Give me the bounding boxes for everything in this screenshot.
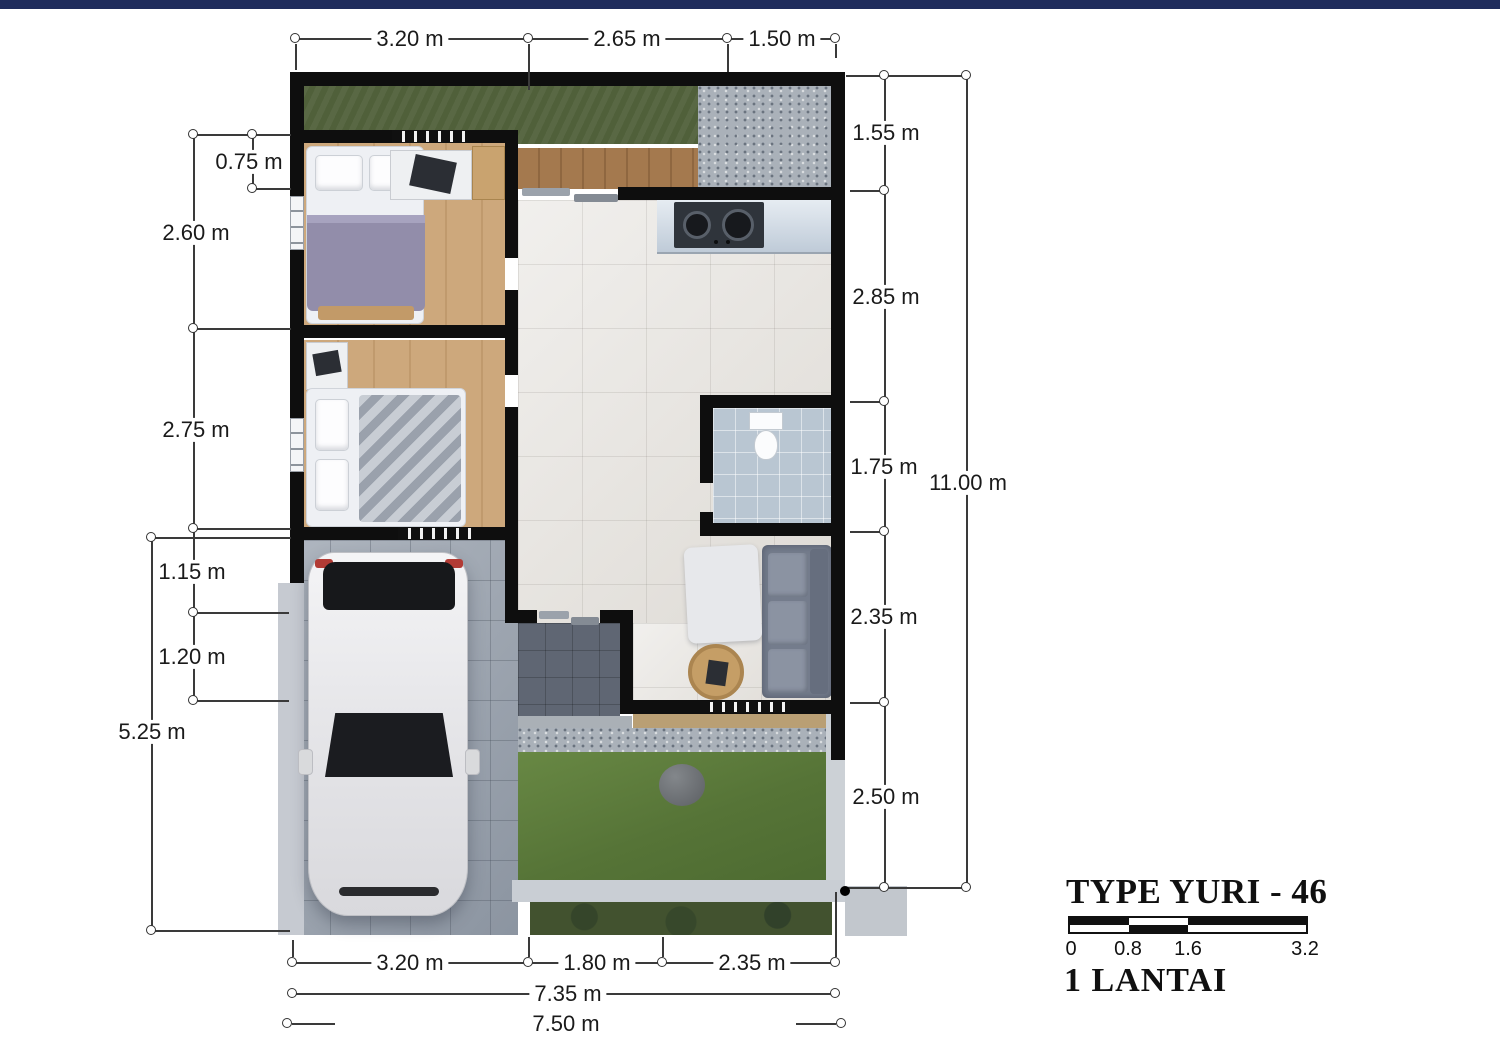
top-accent-bar bbox=[0, 0, 1500, 9]
sofa bbox=[762, 545, 832, 698]
wall-kitchen-top bbox=[618, 187, 831, 200]
sofa-cushion bbox=[768, 553, 808, 597]
dim-label: 2.75 m bbox=[157, 418, 234, 442]
dim-line bbox=[292, 1023, 335, 1025]
dim-circle bbox=[146, 925, 156, 935]
wall-hall-b bbox=[505, 290, 518, 375]
entry-sliding-door bbox=[539, 611, 569, 619]
dim-line bbox=[835, 892, 837, 957]
dim-label: 7.35 m bbox=[529, 982, 606, 1006]
dim-label: 2.85 m bbox=[847, 285, 924, 309]
dim-line bbox=[662, 937, 664, 957]
dim-label: 2.60 m bbox=[157, 221, 234, 245]
dim-line bbox=[528, 937, 530, 957]
garden-stone bbox=[659, 764, 705, 806]
table-tray bbox=[705, 660, 728, 687]
dim-circle bbox=[247, 183, 257, 193]
corner-dot bbox=[840, 886, 850, 896]
scale-tick: 0.8 bbox=[1114, 938, 1142, 961]
dim-label: 7.50 m bbox=[527, 1012, 604, 1036]
car bbox=[308, 552, 468, 916]
wall-left bbox=[290, 72, 304, 583]
wall-bedrooms-divider bbox=[304, 325, 518, 338]
dim-circle bbox=[188, 129, 198, 139]
sofa-backrest bbox=[810, 549, 828, 694]
dim-circle bbox=[722, 33, 732, 43]
wall-hall-a bbox=[505, 130, 518, 258]
coffee-table bbox=[688, 644, 744, 700]
wood-deck bbox=[518, 148, 698, 189]
dim-label: 0.75 m bbox=[210, 150, 287, 174]
bed-1-bench bbox=[318, 306, 414, 320]
dim-circle bbox=[879, 526, 889, 536]
entry-sliding-door bbox=[571, 617, 599, 625]
scale-bar-bottom-row bbox=[1070, 925, 1306, 932]
dim-line bbox=[292, 940, 294, 957]
dim-circle bbox=[879, 882, 889, 892]
dim-line bbox=[151, 930, 290, 932]
front-hedge bbox=[530, 902, 832, 935]
plan-title: TYPE YURI - 46 bbox=[1066, 872, 1327, 912]
car-grille bbox=[339, 887, 439, 896]
kitchen-sliding-door bbox=[522, 188, 570, 196]
bed-1-blanket bbox=[307, 215, 425, 311]
dim-label: 2.50 m bbox=[847, 785, 924, 809]
dim-line bbox=[193, 134, 291, 136]
toilet-tank bbox=[749, 412, 783, 430]
wall-bath-top bbox=[700, 395, 831, 408]
terrace-floor bbox=[518, 623, 620, 716]
side-table-frame bbox=[312, 350, 341, 376]
scale-tick: 3.2 bbox=[1291, 938, 1319, 961]
dim-label: 2.35 m bbox=[845, 605, 922, 629]
dim-label: 2.65 m bbox=[588, 27, 665, 51]
window-bedroom1-side bbox=[290, 196, 304, 250]
scale-bar-top-row bbox=[1070, 918, 1306, 925]
scale-tick: 0 bbox=[1065, 938, 1076, 961]
living-rug bbox=[684, 544, 763, 644]
dim-line bbox=[884, 75, 886, 887]
dim-circle bbox=[188, 323, 198, 333]
dim-label: 1.50 m bbox=[743, 27, 820, 51]
dim-label: 1.55 m bbox=[847, 121, 924, 145]
sofa-cushion bbox=[768, 601, 808, 645]
bed-1-pillow bbox=[315, 155, 363, 191]
dim-circle bbox=[287, 988, 297, 998]
dim-label: 1.80 m bbox=[558, 951, 635, 975]
dim-circle bbox=[961, 882, 971, 892]
dim-circle bbox=[287, 957, 297, 967]
car-mirror bbox=[465, 749, 480, 775]
wall-bath-bottom bbox=[700, 523, 831, 536]
dim-line bbox=[846, 887, 966, 889]
wardrobe bbox=[472, 146, 505, 200]
dim-line bbox=[846, 75, 966, 77]
gravel-corner bbox=[698, 86, 832, 187]
scale-bar bbox=[1068, 916, 1308, 934]
window-bedroom1 bbox=[392, 130, 468, 143]
dim-circle bbox=[188, 523, 198, 533]
window-bedroom2 bbox=[398, 527, 472, 540]
dim-line bbox=[295, 44, 297, 70]
scale-tick: 1.6 bbox=[1174, 938, 1202, 961]
sofa-cushion bbox=[768, 649, 808, 693]
dim-line bbox=[835, 44, 837, 58]
stove bbox=[674, 202, 764, 248]
dim-line bbox=[796, 1023, 836, 1025]
dim-line bbox=[151, 537, 291, 539]
dim-circle bbox=[146, 532, 156, 542]
dim-label: 3.20 m bbox=[371, 27, 448, 51]
dim-circle bbox=[830, 957, 840, 967]
dim-label: 2.35 m bbox=[713, 951, 790, 975]
floor-plan-canvas: 3.20 m 2.65 m 1.50 m 0.75 m 2.60 m 2.75 … bbox=[0, 0, 1500, 1061]
dim-circle bbox=[523, 957, 533, 967]
kitchen-sliding-door bbox=[574, 194, 618, 202]
dim-circle bbox=[879, 185, 889, 195]
wall-top bbox=[290, 72, 845, 86]
car-windshield bbox=[325, 713, 453, 777]
dim-circle bbox=[830, 33, 840, 43]
wall-right bbox=[831, 72, 845, 760]
dim-circle bbox=[879, 396, 889, 406]
dim-circle bbox=[879, 70, 889, 80]
dim-circle bbox=[282, 1018, 292, 1028]
dim-circle bbox=[247, 129, 257, 139]
dim-line bbox=[193, 700, 289, 702]
wall-entry-left bbox=[505, 610, 537, 623]
dim-line bbox=[193, 528, 291, 530]
dim-line bbox=[528, 44, 530, 90]
dim-circle bbox=[188, 695, 198, 705]
dim-label: 1.20 m bbox=[153, 645, 230, 669]
window-bedroom2-side bbox=[290, 418, 304, 472]
lawn-concrete-edge bbox=[512, 880, 845, 902]
car-mirror bbox=[298, 749, 313, 775]
dim-line bbox=[193, 328, 291, 330]
dim-line bbox=[252, 188, 291, 190]
dim-circle bbox=[836, 1018, 846, 1028]
porch-edge bbox=[633, 714, 832, 728]
wall-hall-c bbox=[505, 407, 518, 623]
dim-line bbox=[727, 44, 729, 72]
dim-label: 1.15 m bbox=[153, 560, 230, 584]
dim-label: 3.20 m bbox=[371, 951, 448, 975]
dim-label: 11.00 m bbox=[924, 471, 1012, 495]
wall-terrace-side bbox=[620, 610, 633, 714]
dim-circle bbox=[657, 957, 667, 967]
terrace-step bbox=[518, 716, 632, 728]
bed-2-pillow bbox=[315, 459, 349, 511]
dim-circle bbox=[830, 988, 840, 998]
dim-label: 1.75 m bbox=[845, 455, 922, 479]
stove-knob bbox=[726, 240, 730, 244]
stove-burner bbox=[722, 209, 754, 241]
dim-circle bbox=[290, 33, 300, 43]
floor-label: 1 LANTAI bbox=[1064, 962, 1227, 1000]
dim-circle bbox=[523, 33, 533, 43]
bed-2-pillow bbox=[315, 399, 349, 451]
dim-circle bbox=[879, 697, 889, 707]
window-living bbox=[700, 701, 790, 713]
dim-circle bbox=[188, 607, 198, 617]
stove-burner bbox=[683, 211, 711, 239]
stove-knob bbox=[714, 240, 718, 244]
front-gravel-strip bbox=[518, 728, 832, 752]
dim-label: 5.25 m bbox=[113, 720, 190, 744]
toilet-bowl bbox=[754, 430, 778, 460]
corner-pad bbox=[845, 886, 907, 936]
bed-2 bbox=[306, 388, 466, 527]
bed-2-blanket bbox=[359, 395, 461, 522]
car-rear-glass bbox=[323, 562, 455, 610]
dim-circle bbox=[961, 70, 971, 80]
dim-line bbox=[193, 612, 289, 614]
wall-bath-left-a bbox=[700, 395, 713, 483]
